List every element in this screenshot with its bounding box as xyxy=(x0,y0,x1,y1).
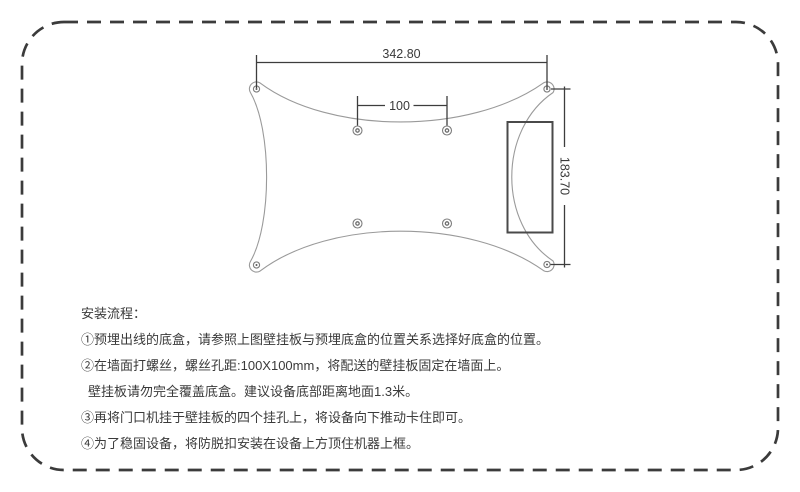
instruction-step-1: ①预埋出线的底盒，请参照上图壁挂板与预埋底盒的位置关系选择好底盒的位置。 xyxy=(81,327,549,353)
dim-hole-spacing-label: 100 xyxy=(389,99,410,113)
instruction-step-4: ④为了稳固设备，将防脱扣安装在设备上方顶住机器上框。 xyxy=(81,431,549,457)
instructions-title: 安装流程： xyxy=(81,301,549,327)
corner-hole-bottom-left xyxy=(253,262,259,268)
screw-holes xyxy=(353,126,452,228)
corner-holes xyxy=(253,86,550,268)
width-dimension: 342.80 xyxy=(257,47,548,88)
screw-hole-bottom-right xyxy=(443,219,452,228)
screw-hole-bottom-left xyxy=(353,219,362,228)
dim-width-label: 342.80 xyxy=(382,47,420,61)
screw-hole-top-left xyxy=(353,126,362,135)
height-dimension: 183.70 xyxy=(551,87,572,268)
manual-page: 342.80 100 183.70 安装流程： ①预埋出线的底盒，请参照上图壁挂… xyxy=(0,0,800,492)
junction-box-outline xyxy=(508,122,553,233)
corner-hole-bottom-right xyxy=(544,261,550,267)
dim-height-label: 183.70 xyxy=(558,157,572,195)
installation-instructions: 安装流程： ①预埋出线的底盒，请参照上图壁挂板与预埋底盒的位置关系选择好底盒的位… xyxy=(81,301,549,457)
instruction-step-2-continued: 壁挂板请勿完全覆盖底盒。建议设备底部距离地面1.3米。 xyxy=(81,379,549,405)
instruction-step-3: ③再将门口机挂于壁挂板的四个挂孔上，将设备向下推动卡住即可。 xyxy=(81,405,549,431)
screw-hole-top-right xyxy=(443,126,452,135)
instruction-step-2: ②在墙面打螺丝，螺丝孔距:100X100mm，将配送的壁挂板固定在墙面上。 xyxy=(81,353,549,379)
